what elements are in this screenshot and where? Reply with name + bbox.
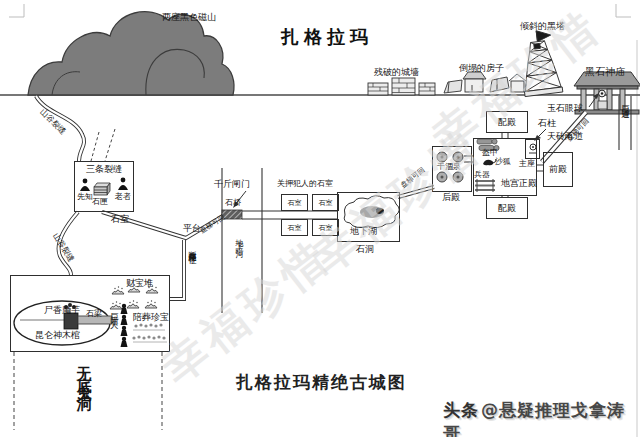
giant-pupil-statues-label: 巨瞳石人 — [109, 306, 117, 318]
bridge-label: 石桥 — [225, 199, 241, 207]
three-cracks-label: 三条裂缝 — [86, 165, 122, 174]
credit-watermark: 头条@悬疑推理戈拿涛哥 — [443, 399, 640, 437]
ruined-wall-label: 残破的城墙 — [374, 68, 419, 77]
stone-beam-label: 石梁 — [86, 310, 102, 318]
gate-passage-label: 巨门通道 — [620, 98, 628, 106]
pillar-label: 石柱 — [538, 119, 556, 128]
front-hall-box: 前殿 — [543, 152, 573, 187]
ruined-wall-icon — [368, 78, 435, 95]
mountains-label: 两座黑色磁山 — [162, 13, 216, 22]
burial-treasure-label: 陪葬珍宝 — [133, 313, 169, 322]
prison-cell-box: 石室 — [312, 219, 339, 236]
prison-cell-box: 石室 — [281, 194, 308, 211]
front-hall-label: 前殿 — [549, 163, 567, 176]
jade-eyeball-label: 玉石眼球 — [547, 104, 583, 113]
treasure-pile-label: 财宝堆 — [126, 279, 153, 288]
side-hall-top-label: 配殿 — [498, 116, 516, 129]
throne-label: 主座 — [519, 160, 535, 168]
leaning-tower-label: 倾斜的黑塔 — [520, 22, 565, 31]
corpse-flower-label: 尸香魔芋 — [44, 306, 80, 315]
prison-cell-label: 石室 — [288, 223, 302, 233]
crack-dashes-icon — [91, 129, 115, 161]
dry-spring-label: 干涸泉 — [437, 163, 461, 171]
prison-cell-label: 石室 — [319, 198, 333, 208]
prison-cell-box: 石室 — [281, 219, 308, 236]
side-hall-top-box: 配殿 — [486, 111, 528, 133]
stone-casket-label: 石匣 — [92, 198, 108, 206]
elder-label: 老者 — [115, 193, 131, 201]
temple-icon — [574, 72, 640, 114]
rear-hall-label: 后殿 — [442, 193, 460, 202]
prison-cell-label: 石室 — [288, 198, 302, 208]
map-top-title: 扎格拉玛 — [281, 25, 373, 49]
throne-box — [525, 139, 540, 159]
map-bottom-title: 扎格拉玛精绝古城图 — [236, 371, 407, 394]
prophet-label: 先知 — [77, 193, 93, 201]
dark-river-label: 地下暗河 — [234, 232, 242, 248]
collapsed-houses-label: 倒塌的房子 — [459, 64, 504, 73]
temple-label: 黑石神庙 — [585, 67, 625, 78]
side-hall-bottom-box: 配殿 — [486, 197, 528, 219]
coffin-label: 昆仑神木棺 — [35, 331, 80, 340]
cave-label: 石洞 — [356, 245, 374, 254]
weapons-label: 兵器 — [474, 171, 490, 179]
bottomless-pit-label: 无底鬼洞 — [74, 354, 93, 394]
winch-gate-label: 千斤闸门 — [214, 180, 250, 189]
lake-label: 地下湖 — [350, 227, 377, 236]
prison-cell-box: 石室 — [312, 194, 339, 211]
prison-cell-label: 石室 — [319, 223, 333, 233]
toutiao-logo: 头条 — [443, 400, 479, 420]
stone-room-label: 石室 — [111, 215, 129, 224]
main-hall-label: 地宫正殿 — [501, 179, 537, 188]
jade-eyeball-icon — [599, 90, 606, 97]
magnetic-mountains-icon — [28, 12, 234, 95]
collapsed-houses-icon — [444, 72, 526, 93]
ancient-city-map: 配殿 配殿 前殿 石室 石室 石室 石室 扎格拉玛 两座黑色磁山 残破的城墙 倒… — [0, 0, 640, 437]
side-hall-bottom-label: 配殿 — [498, 202, 516, 215]
prison-cells-label: 关押犯人的石室 — [277, 180, 333, 188]
cliff-rope-label: 断崖爬绳梯往下 — [187, 244, 195, 251]
sand-fox-label: 沙狐 — [495, 158, 511, 166]
